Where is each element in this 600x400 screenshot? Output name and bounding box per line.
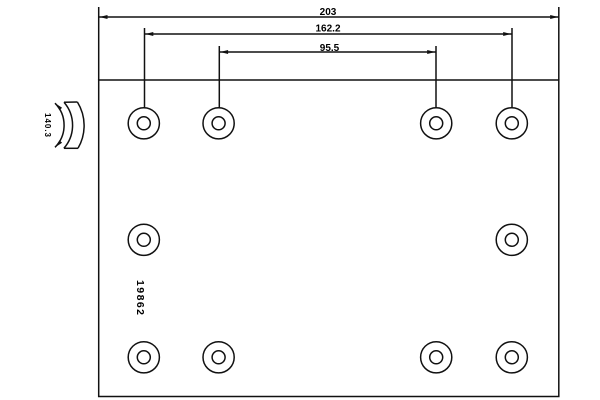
svg-text:19862: 19862 <box>134 280 146 315</box>
svg-text:140.3: 140.3 <box>43 113 52 138</box>
svg-text:95.5: 95.5 <box>320 43 340 54</box>
svg-text:162.2: 162.2 <box>315 23 340 34</box>
svg-text:203: 203 <box>320 7 337 18</box>
